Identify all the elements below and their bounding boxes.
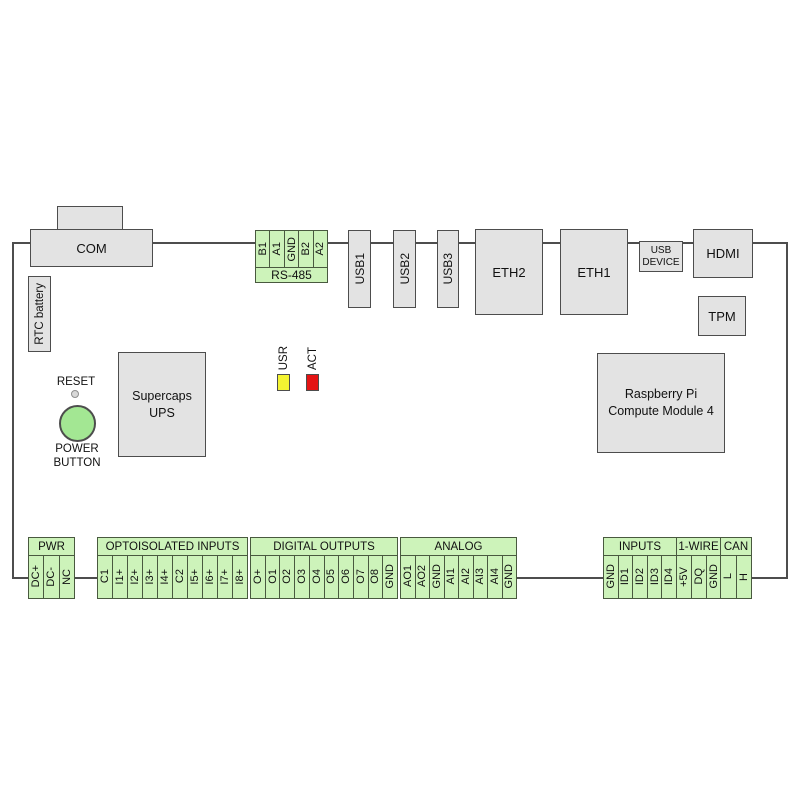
terminal: C1 <box>98 556 113 598</box>
act-led <box>306 374 319 391</box>
one-wire-block: 1-WIRE +5V DQ GND <box>676 537 722 599</box>
terminal: I8+ <box>233 556 247 598</box>
terminal: L <box>721 556 737 598</box>
outline-right-edge <box>786 242 788 579</box>
terminal: H <box>737 556 752 598</box>
pwr-block: PWR DC+ DC- NC <box>28 537 75 599</box>
com-connector: COM <box>30 229 153 267</box>
terminal: GND <box>285 231 299 267</box>
terminal: O6 <box>339 556 354 598</box>
terminal: AI2 <box>459 556 474 598</box>
terminal: DC- <box>44 556 59 598</box>
terminal: O3 <box>295 556 310 598</box>
usr-led <box>277 374 290 391</box>
raspberry-pi-cm4: Raspberry Pi Compute Module 4 <box>597 353 725 453</box>
terminal: AI1 <box>445 556 460 598</box>
can-header: CAN <box>720 537 752 556</box>
act-led-label: ACT <box>300 344 325 373</box>
terminal: GND <box>604 556 619 598</box>
hdmi-port: HDMI <box>693 229 753 278</box>
terminal: I5+ <box>188 556 203 598</box>
tpm-label: TPM <box>708 309 735 324</box>
eth2-port: ETH2 <box>475 229 543 315</box>
usb2-port: USB2 <box>393 230 416 308</box>
usb-device-label: USB DEVICE <box>642 245 679 269</box>
terminal: GND <box>503 556 517 598</box>
usb3-label: USB3 <box>441 253 455 284</box>
terminal: AO1 <box>401 556 416 598</box>
inputs-header: INPUTS <box>603 537 677 556</box>
power-button <box>59 405 96 442</box>
usb1-label: USB1 <box>353 253 367 284</box>
optoisolated-inputs-block: OPTOISOLATED INPUTS C1 I1+ I2+ I3+ I4+ C… <box>97 537 248 599</box>
terminal: NC <box>60 556 74 598</box>
outline-can-right <box>750 577 788 579</box>
terminal: B1 <box>256 231 270 267</box>
terminal: O7 <box>354 556 369 598</box>
digital-outputs-header: DIGITAL OUTPUTS <box>250 537 398 556</box>
outline-usb1-usb2 <box>369 242 395 244</box>
eth1-label: ETH1 <box>577 265 610 280</box>
terminal: C2 <box>173 556 188 598</box>
supercaps-ups-label: Supercaps UPS <box>132 388 192 422</box>
terminal: ID1 <box>619 556 634 598</box>
reset-label: RESET <box>48 375 104 388</box>
outline-top-left-stub <box>12 242 32 244</box>
usb2-label: USB2 <box>398 253 412 284</box>
outline-usb2-usb3 <box>414 242 439 244</box>
eth2-label: ETH2 <box>492 265 525 280</box>
terminal: I4+ <box>158 556 173 598</box>
optoisolated-inputs-header: OPTOISOLATED INPUTS <box>97 537 248 556</box>
terminal: B2 <box>299 231 313 267</box>
supercaps-ups-module: Supercaps UPS <box>118 352 206 457</box>
terminal: I3+ <box>143 556 158 598</box>
terminal: DC+ <box>29 556 44 598</box>
hdmi-label: HDMI <box>706 246 739 261</box>
can-block: CAN L H <box>720 537 752 599</box>
outline-usb3-eth2 <box>457 242 477 244</box>
terminal: A2 <box>314 231 327 267</box>
outline-eth2-eth1 <box>541 242 562 244</box>
terminal: +5V <box>677 556 692 598</box>
tpm-chip: TPM <box>698 296 746 336</box>
terminal: ID4 <box>662 556 676 598</box>
outline-analog-inputs <box>515 577 605 579</box>
raspberry-pi-cm4-label: Raspberry Pi Compute Module 4 <box>608 386 714 420</box>
terminal: GND <box>383 556 397 598</box>
terminal: O5 <box>325 556 340 598</box>
terminal: O8 <box>369 556 384 598</box>
terminal: ID2 <box>633 556 648 598</box>
terminal: GND <box>707 556 721 598</box>
outline-rs485-usb1 <box>325 242 350 244</box>
usb1-port: USB1 <box>348 230 371 308</box>
eth1-port: ETH1 <box>560 229 628 315</box>
outline-left-edge <box>12 242 14 579</box>
terminal: AI3 <box>474 556 489 598</box>
rs485-label: RS-485 <box>255 267 328 283</box>
usr-led-label: USR <box>271 344 296 373</box>
terminal: ID3 <box>648 556 663 598</box>
pwr-header: PWR <box>28 537 75 556</box>
reset-button <box>71 390 79 398</box>
rs485-block: B1 A1 GND B2 A2 RS-485 <box>255 230 328 283</box>
terminal: I7+ <box>218 556 233 598</box>
usb-device-port: USB DEVICE <box>639 241 683 272</box>
power-button-label: POWER BUTTON <box>41 443 113 471</box>
one-wire-header: 1-WIRE <box>676 537 722 556</box>
usb3-port: USB3 <box>437 230 459 308</box>
terminal: I1+ <box>113 556 128 598</box>
terminal: AI4 <box>488 556 503 598</box>
rs485-terminals: B1 A1 GND B2 A2 <box>255 230 328 268</box>
rtc-battery: RTC battery <box>28 276 51 352</box>
rtc-battery-label: RTC battery <box>34 283 46 345</box>
terminal: I6+ <box>203 556 218 598</box>
terminal: O+ <box>251 556 266 598</box>
analog-block: ANALOG AO1 AO2 GND AI1 AI2 AI3 AI4 GND <box>400 537 517 599</box>
terminal: AO2 <box>416 556 431 598</box>
terminal: O2 <box>280 556 295 598</box>
outline-pwr-opto <box>73 577 99 579</box>
terminal: O1 <box>266 556 281 598</box>
outline-hdmi-right <box>751 242 788 244</box>
digital-outputs-block: DIGITAL OUTPUTS O+ O1 O2 O3 O4 O5 O6 O7 … <box>250 537 398 599</box>
terminal: O4 <box>310 556 325 598</box>
terminal: DQ <box>692 556 707 598</box>
com-connector-tab <box>57 206 123 231</box>
terminal: I2+ <box>128 556 143 598</box>
terminal: GND <box>430 556 445 598</box>
terminal: A1 <box>270 231 284 267</box>
outline-com-rs485 <box>150 242 257 244</box>
analog-header: ANALOG <box>400 537 517 556</box>
com-label: COM <box>76 241 106 256</box>
inputs-block: INPUTS GND ID1 ID2 ID3 ID4 <box>603 537 677 599</box>
board-diagram: COM RTC battery USB1 USB2 USB3 ETH2 ETH1… <box>0 0 800 800</box>
